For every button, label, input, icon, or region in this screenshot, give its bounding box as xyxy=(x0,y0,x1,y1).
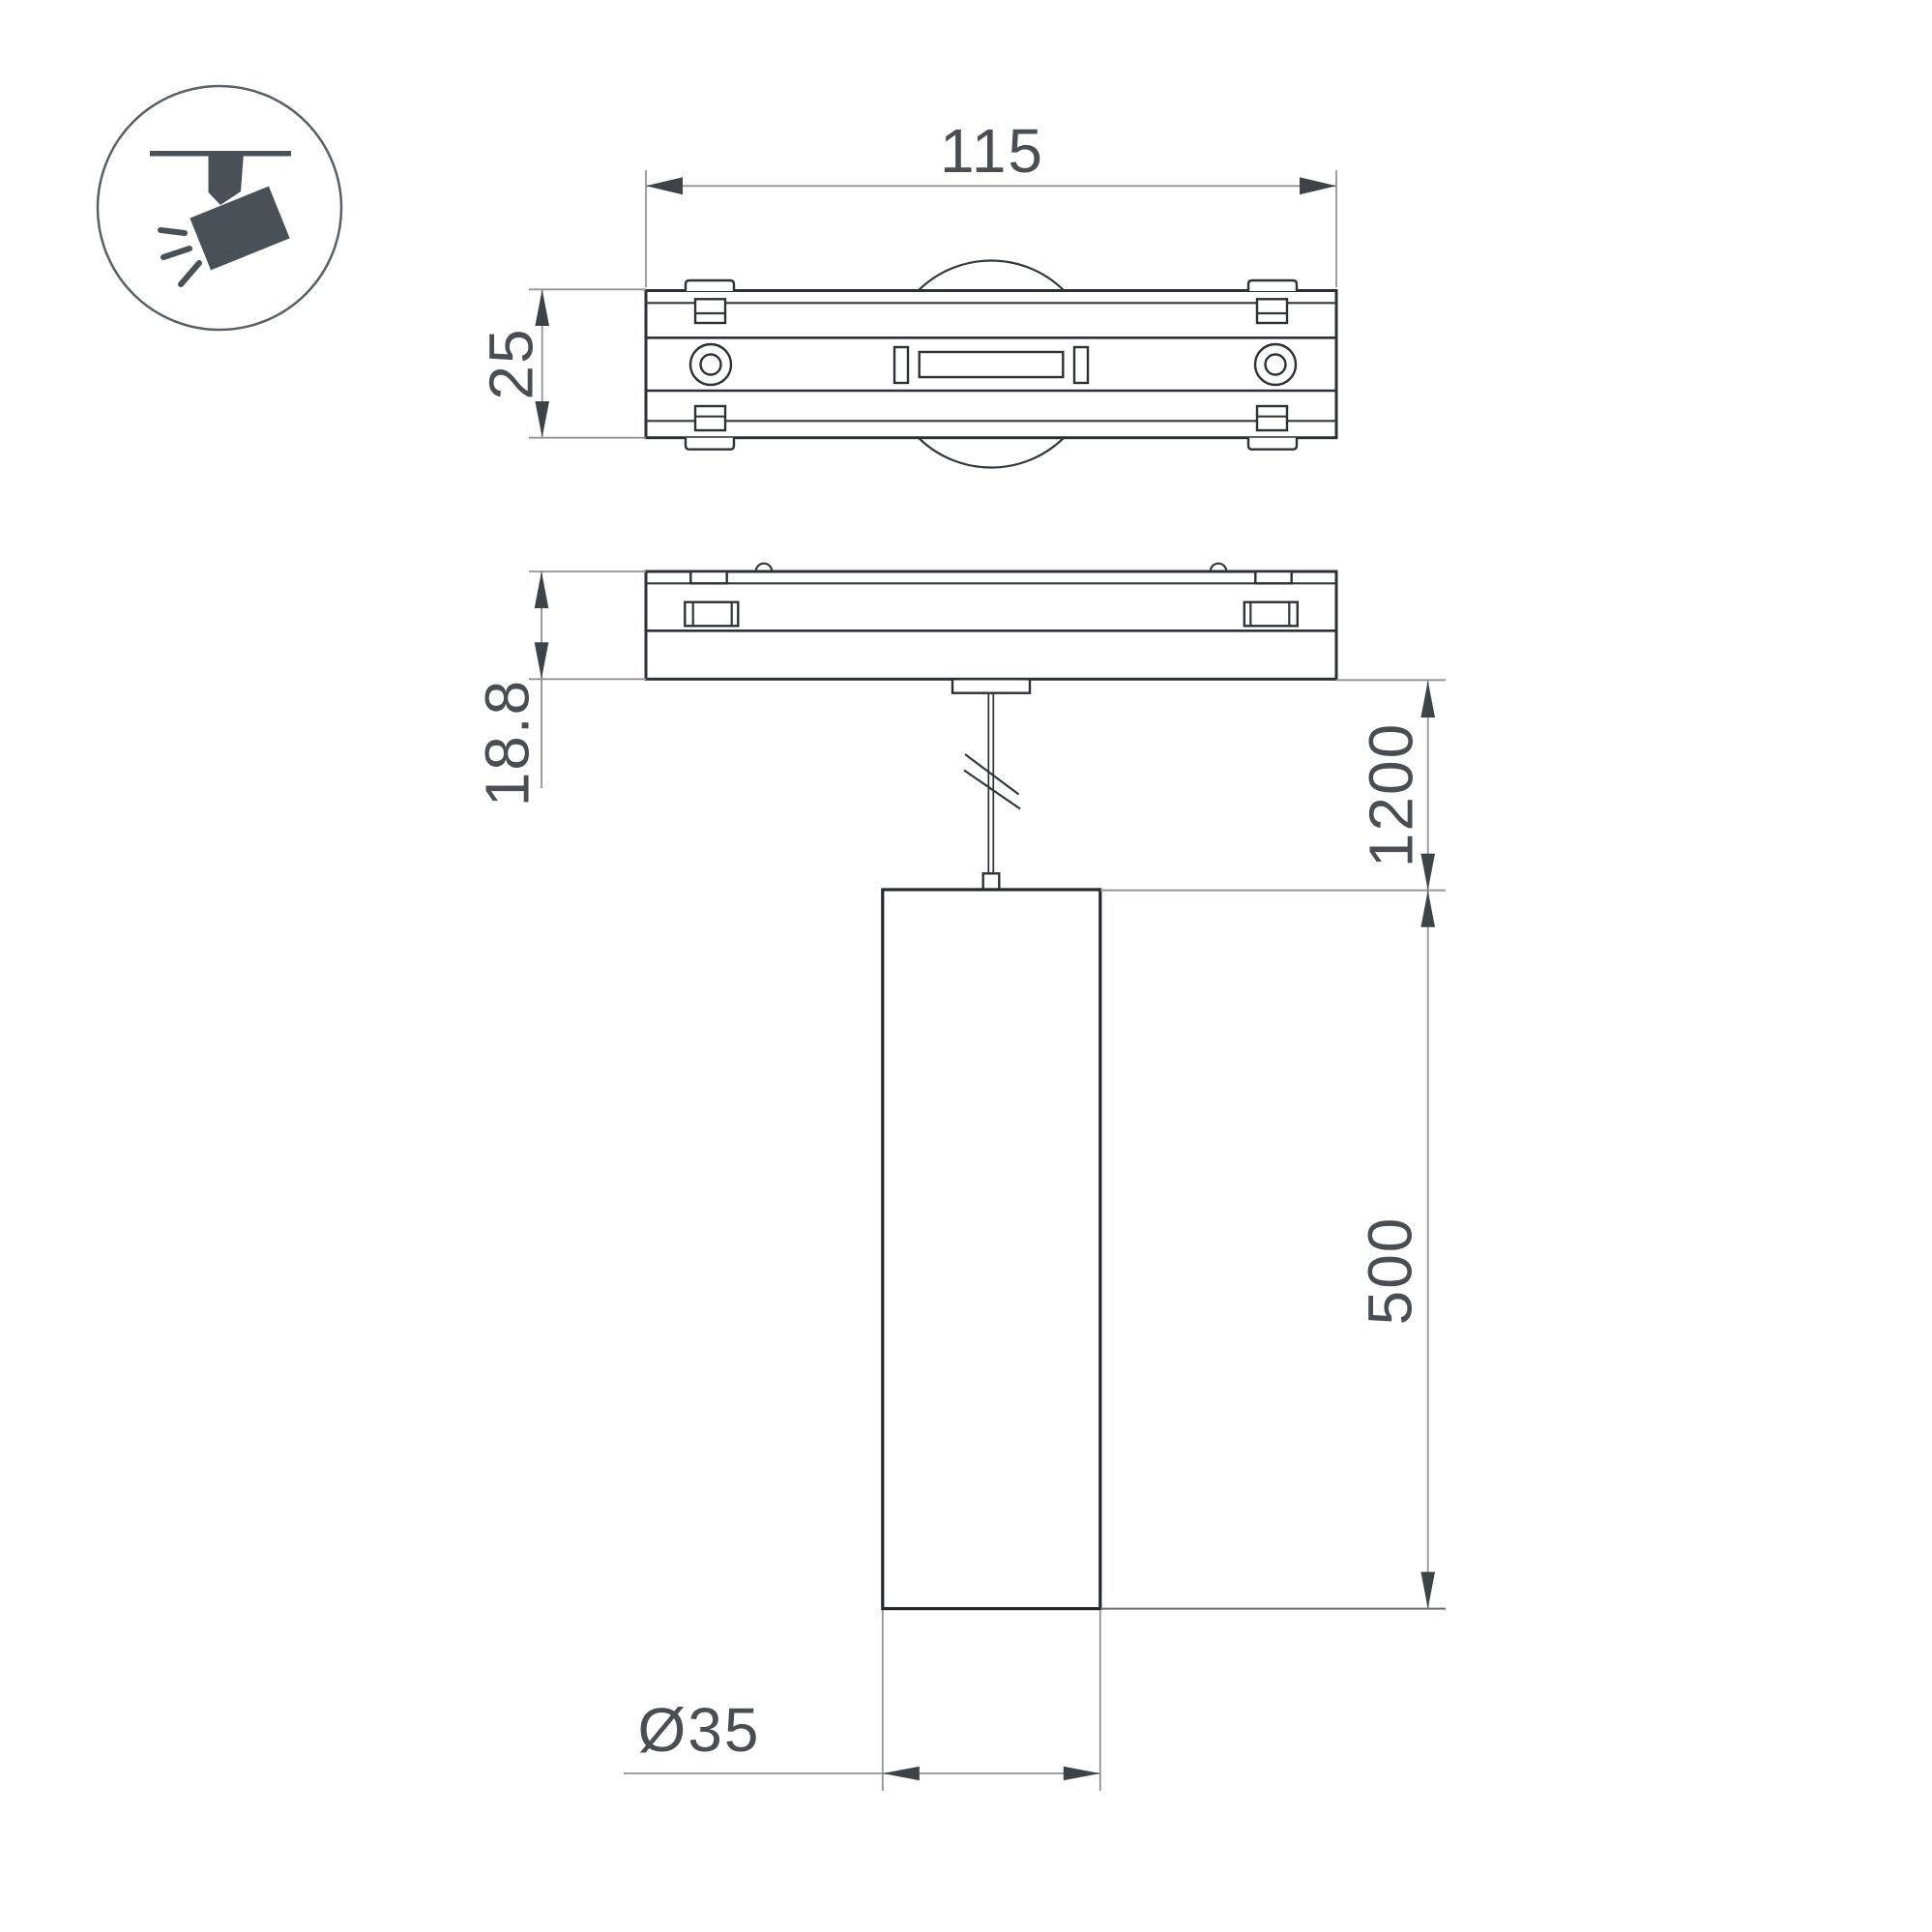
dim-label-1200: 1200 xyxy=(1356,722,1425,867)
screw-boss-left xyxy=(690,344,731,385)
arrowhead xyxy=(535,401,549,438)
icon-light-ray xyxy=(161,230,185,233)
arrowhead xyxy=(1300,177,1336,194)
cable-grip xyxy=(983,873,1000,890)
arrowhead xyxy=(535,289,549,326)
dimension-track-depth: 25 xyxy=(476,289,646,437)
dimension-suspension: 1200 xyxy=(1100,680,1446,890)
dimension-tube-length: 500 xyxy=(1100,891,1446,1609)
contact-box-left xyxy=(685,602,738,627)
pendant-tube xyxy=(883,890,1100,1609)
dimension-drawing: 115 25 xyxy=(0,0,1932,1932)
contact-box-right xyxy=(1244,602,1298,627)
side-view xyxy=(646,564,1336,890)
connector-slot xyxy=(894,347,1088,383)
arrowhead xyxy=(883,1767,920,1781)
suspension-plate xyxy=(952,679,1030,692)
dim-label-diameter: Ø35 xyxy=(638,1695,761,1765)
arrowhead xyxy=(1420,891,1435,927)
clip-side-right xyxy=(1255,571,1291,583)
arrowhead xyxy=(1420,681,1435,717)
clip-side-left xyxy=(690,571,726,583)
screw-boss-right xyxy=(1255,344,1296,385)
dimension-track-height: 18.8 xyxy=(472,571,646,806)
tube-body xyxy=(883,890,1100,1609)
dim-label-18-8: 18.8 xyxy=(472,679,542,807)
dim-label-500: 500 xyxy=(1355,1216,1424,1326)
dim-label-115: 115 xyxy=(940,116,1044,186)
track-module-side xyxy=(646,571,1336,679)
arrowhead xyxy=(535,571,549,608)
dim-label-25: 25 xyxy=(476,327,545,399)
arrowhead xyxy=(535,642,549,679)
dimension-tube-diameter: Ø35 xyxy=(624,1610,1100,1791)
arrowhead xyxy=(1064,1767,1100,1781)
arrowhead xyxy=(1420,1572,1435,1609)
track-spotlight-icon xyxy=(98,86,341,330)
arrowhead xyxy=(646,177,683,194)
drawing-canvas: 115 25 xyxy=(0,0,1932,1932)
top-view xyxy=(646,261,1336,468)
